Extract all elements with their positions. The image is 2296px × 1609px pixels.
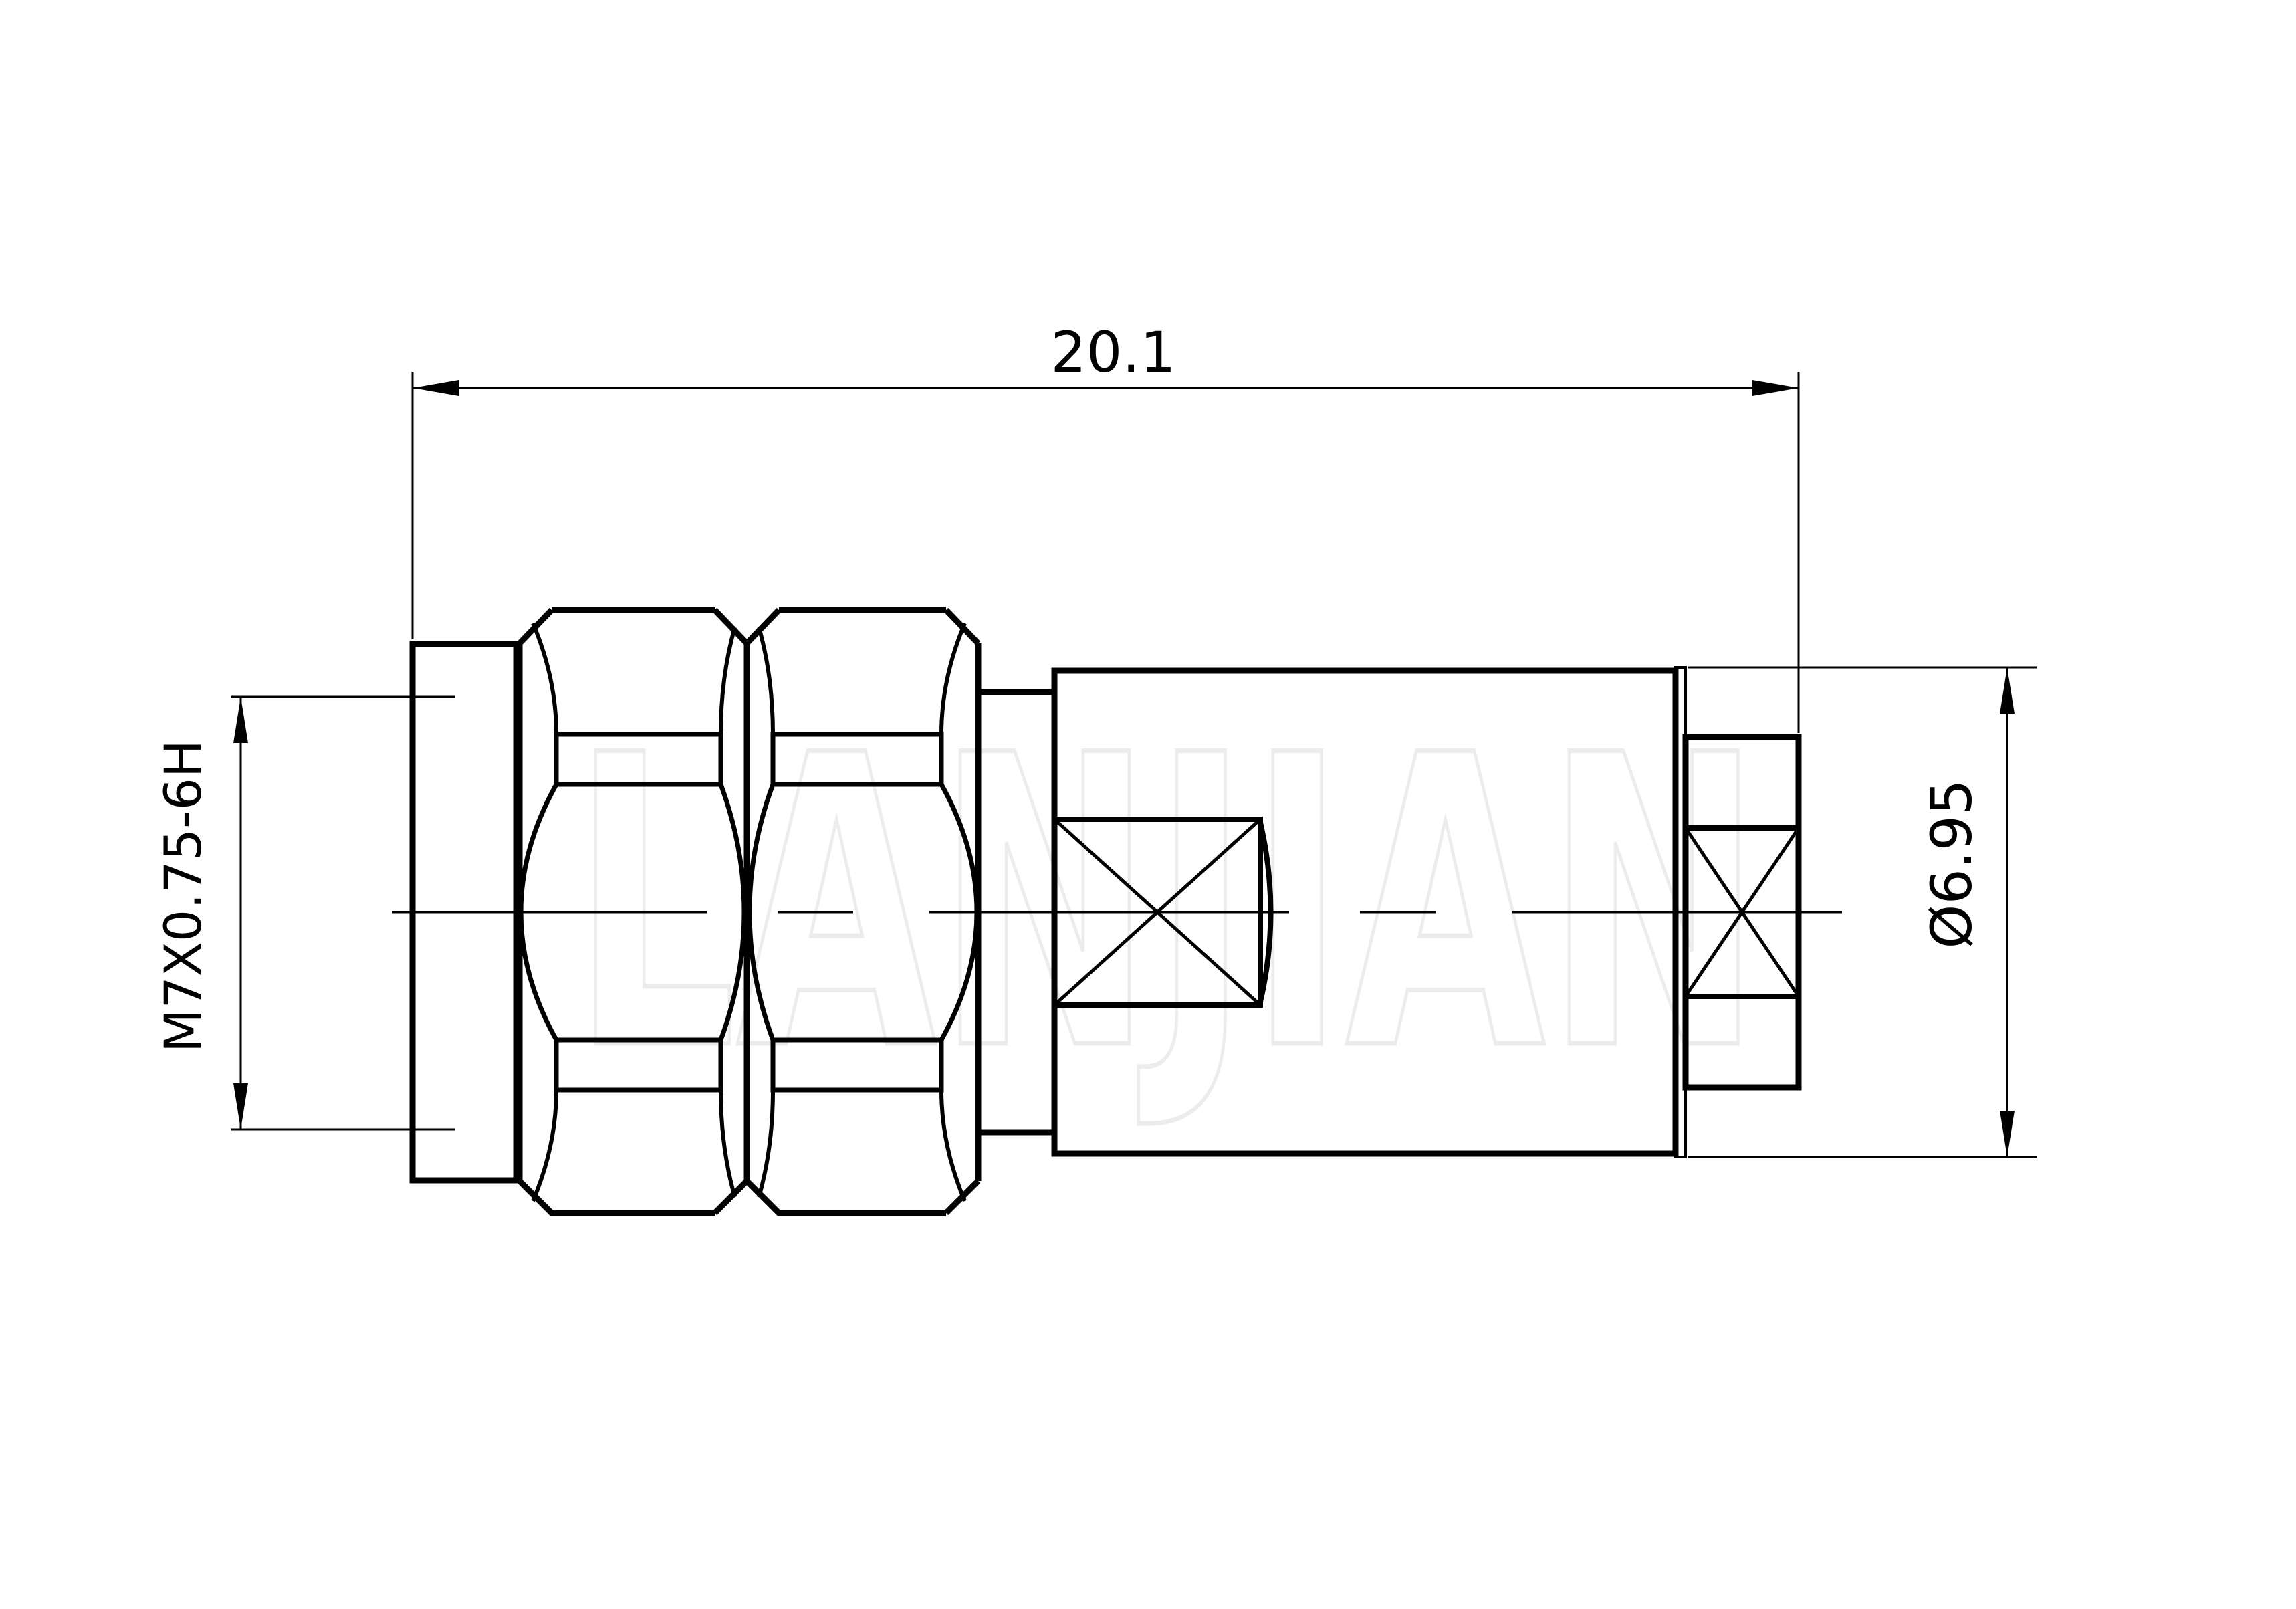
- dim-thread-label: M7X0.75-6H: [153, 740, 213, 1053]
- technical-drawing-canvas: LANJIAN: [0, 0, 2296, 1609]
- drawing-sheet: LANJIAN: [0, 0, 2296, 1609]
- dim-length-label: 20.1: [1050, 320, 1175, 385]
- dim-diameter-label: Ø6.95: [1919, 779, 1984, 948]
